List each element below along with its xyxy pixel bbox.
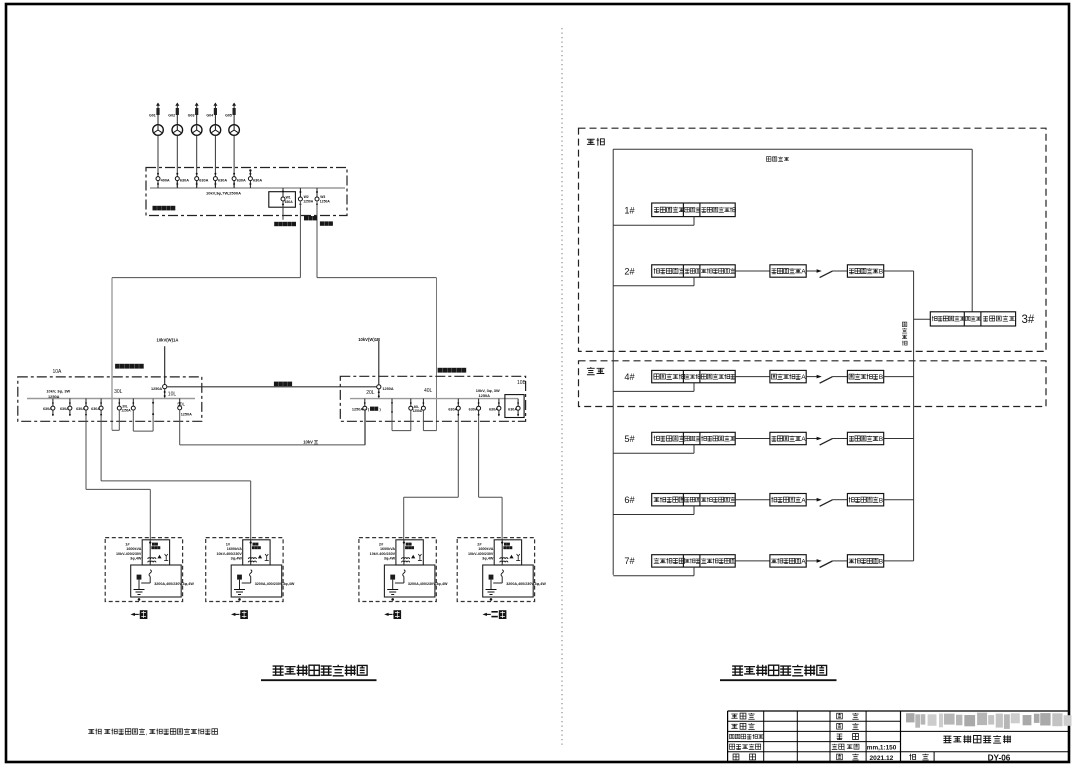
svg-text:3200A,400/230V,3φ,4W: 3200A,400/230V,3φ,4W	[408, 582, 448, 586]
svg-text:W2: W2	[304, 195, 309, 199]
svg-text:1250A: 1250A	[320, 200, 331, 204]
svg-text:3200A,400/230V,3φ,4W: 3200A,400/230V,3φ,4W	[154, 582, 194, 586]
svg-text:1#: 1#	[624, 206, 635, 216]
svg-text:40L: 40L	[424, 388, 433, 394]
svg-text:400A: 400A	[161, 178, 170, 182]
svg-text:10kV-400/230V: 10kV-400/230V	[468, 552, 494, 556]
svg-text:630A: 630A	[253, 178, 262, 182]
svg-text:1250A: 1250A	[48, 394, 60, 399]
svg-text:3φ,4W: 3φ,4W	[130, 557, 142, 561]
svg-text:G02: G02	[168, 114, 175, 118]
svg-text:2#: 2#	[624, 266, 635, 276]
svg-text:1250A: 1250A	[151, 387, 162, 391]
svg-text:630A: 630A	[91, 407, 100, 411]
svg-text:1600kVA: 1600kVA	[478, 547, 493, 551]
svg-text:,: ,	[844, 746, 845, 752]
svg-text:630A: 630A	[237, 178, 246, 182]
svg-text:20L: 20L	[366, 390, 375, 396]
svg-text:10kV(W)1A: 10kV(W)1A	[157, 337, 179, 342]
svg-text:630A: 630A	[508, 407, 517, 411]
svg-text:630A: 630A	[448, 407, 457, 411]
svg-text:DY-06: DY-06	[988, 753, 1011, 762]
svg-text:3φ,4W: 3φ,4W	[231, 557, 243, 561]
svg-text:4#: 4#	[624, 372, 635, 382]
svg-text:1250A: 1250A	[181, 413, 192, 417]
svg-text:10L: 10L	[168, 391, 177, 397]
svg-text:30L: 30L	[114, 389, 123, 395]
svg-text:10A: 10A	[53, 369, 63, 375]
svg-text:50L: 50L	[177, 402, 185, 407]
svg-text:3φ,4W: 3φ,4W	[482, 557, 494, 561]
svg-text:630A: 630A	[76, 407, 85, 411]
svg-text:B: B	[879, 269, 884, 276]
svg-text:G04: G04	[206, 114, 213, 118]
svg-text:W3: W3	[320, 195, 325, 199]
svg-text:630A: 630A	[180, 178, 189, 182]
svg-text:W1: W1	[286, 195, 291, 199]
svg-text:2021.12: 2021.12	[870, 755, 894, 762]
svg-text:A: A	[801, 497, 806, 504]
svg-text:630A: 630A	[285, 200, 294, 204]
svg-text:10kV-400/230V: 10kV-400/230V	[370, 552, 396, 556]
svg-text:630A: 630A	[469, 407, 478, 411]
svg-text:G05: G05	[225, 114, 232, 118]
svg-text:B: B	[879, 436, 884, 443]
svg-text:G01: G01	[149, 114, 156, 118]
svg-text:1250A: 1250A	[303, 200, 314, 204]
svg-text:630A: 630A	[60, 407, 69, 411]
svg-text:10kV,3φ,7W,2500A: 10kV,3φ,7W,2500A	[206, 190, 241, 195]
svg-text:1250A: 1250A	[121, 409, 131, 413]
svg-text:A: A	[801, 436, 806, 443]
svg-text:B: B	[879, 374, 884, 381]
svg-text:A: A	[801, 374, 806, 381]
svg-text:B: B	[879, 497, 884, 504]
svg-text:1600kVA: 1600kVA	[126, 547, 141, 551]
svg-text:630A: 630A	[43, 407, 52, 411]
svg-text:10kV-400/230V: 10kV-400/230V	[116, 552, 142, 556]
svg-text:10kV: 10kV	[303, 440, 313, 445]
svg-text:6#: 6#	[624, 495, 635, 505]
svg-text:3200A,400/230V,3φ,4W: 3200A,400/230V,3φ,4W	[255, 582, 295, 586]
svg-text:G03: G03	[188, 114, 195, 118]
svg-text:3φ,4W: 3φ,4W	[384, 557, 396, 561]
svg-text:1600kVA: 1600kVA	[227, 547, 242, 551]
svg-text:3200A,400/230V,3φ,4W: 3200A,400/230V,3φ,4W	[506, 582, 546, 586]
svg-text:B: B	[879, 559, 884, 566]
svg-text:1250A: 1250A	[382, 387, 393, 391]
svg-text:A: A	[801, 559, 806, 566]
svg-text:3#: 3#	[1022, 314, 1035, 326]
svg-text:1600kVA: 1600kVA	[380, 547, 395, 551]
svg-text:1250A: 1250A	[479, 393, 491, 398]
svg-text:7#: 7#	[624, 556, 635, 566]
svg-text:A: A	[801, 269, 806, 276]
svg-text:10kV-400/230V: 10kV-400/230V	[216, 552, 242, 556]
svg-text:630A: 630A	[199, 178, 208, 182]
svg-text:630A: 630A	[218, 178, 227, 182]
svg-text:10kV(W)1B: 10kV(W)1B	[358, 337, 380, 342]
svg-text:10B: 10B	[517, 380, 527, 386]
svg-text:5#: 5#	[624, 434, 635, 444]
svg-text:1250A: 1250A	[352, 407, 363, 411]
svg-text:630A: 630A	[489, 407, 498, 411]
svg-text:1250A: 1250A	[413, 409, 423, 413]
svg-text:mm,1:150: mm,1:150	[867, 745, 897, 752]
